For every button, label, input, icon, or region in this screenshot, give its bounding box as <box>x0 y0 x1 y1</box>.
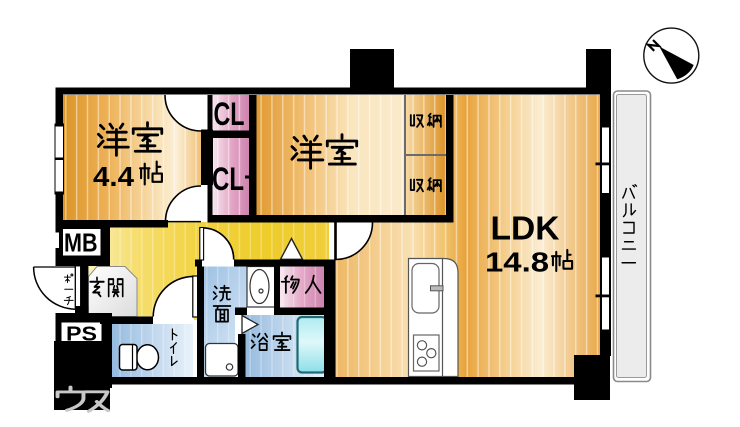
svg-text:14.8: 14.8 <box>485 247 549 278</box>
svg-text:PS: PS <box>66 324 97 346</box>
svg-text:4.4: 4.4 <box>93 161 134 192</box>
svg-text:MB: MB <box>64 228 98 258</box>
svg-text:CL: CL <box>214 96 245 132</box>
svg-text:LDK: LDK <box>491 210 560 247</box>
svg-text:CL: CL <box>212 161 244 197</box>
